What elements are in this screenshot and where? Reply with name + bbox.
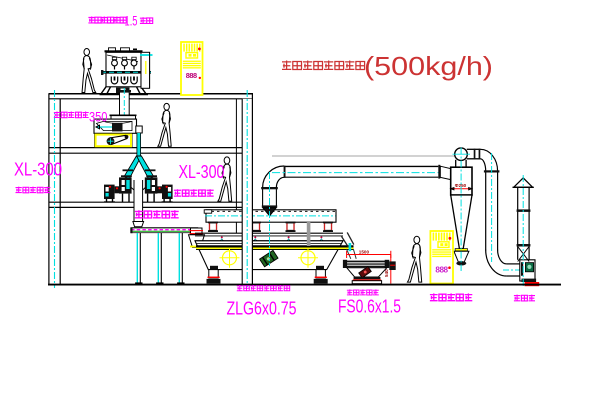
- svg-text:(500kg/h): (500kg/h): [364, 52, 493, 80]
- svg-text:888: 888: [435, 266, 448, 275]
- svg-text:350: 350: [89, 109, 108, 125]
- svg-text:1.5: 1.5: [125, 13, 138, 29]
- svg-text:ZLG6x0.75: ZLG6x0.75: [227, 298, 297, 319]
- svg-text:XL-300: XL-300: [14, 159, 62, 180]
- svg-text:1500: 1500: [359, 250, 370, 255]
- svg-text:FS0.6x1.5: FS0.6x1.5: [338, 296, 401, 317]
- svg-text:888: 888: [186, 71, 197, 80]
- svg-text:XL-300: XL-300: [179, 161, 225, 182]
